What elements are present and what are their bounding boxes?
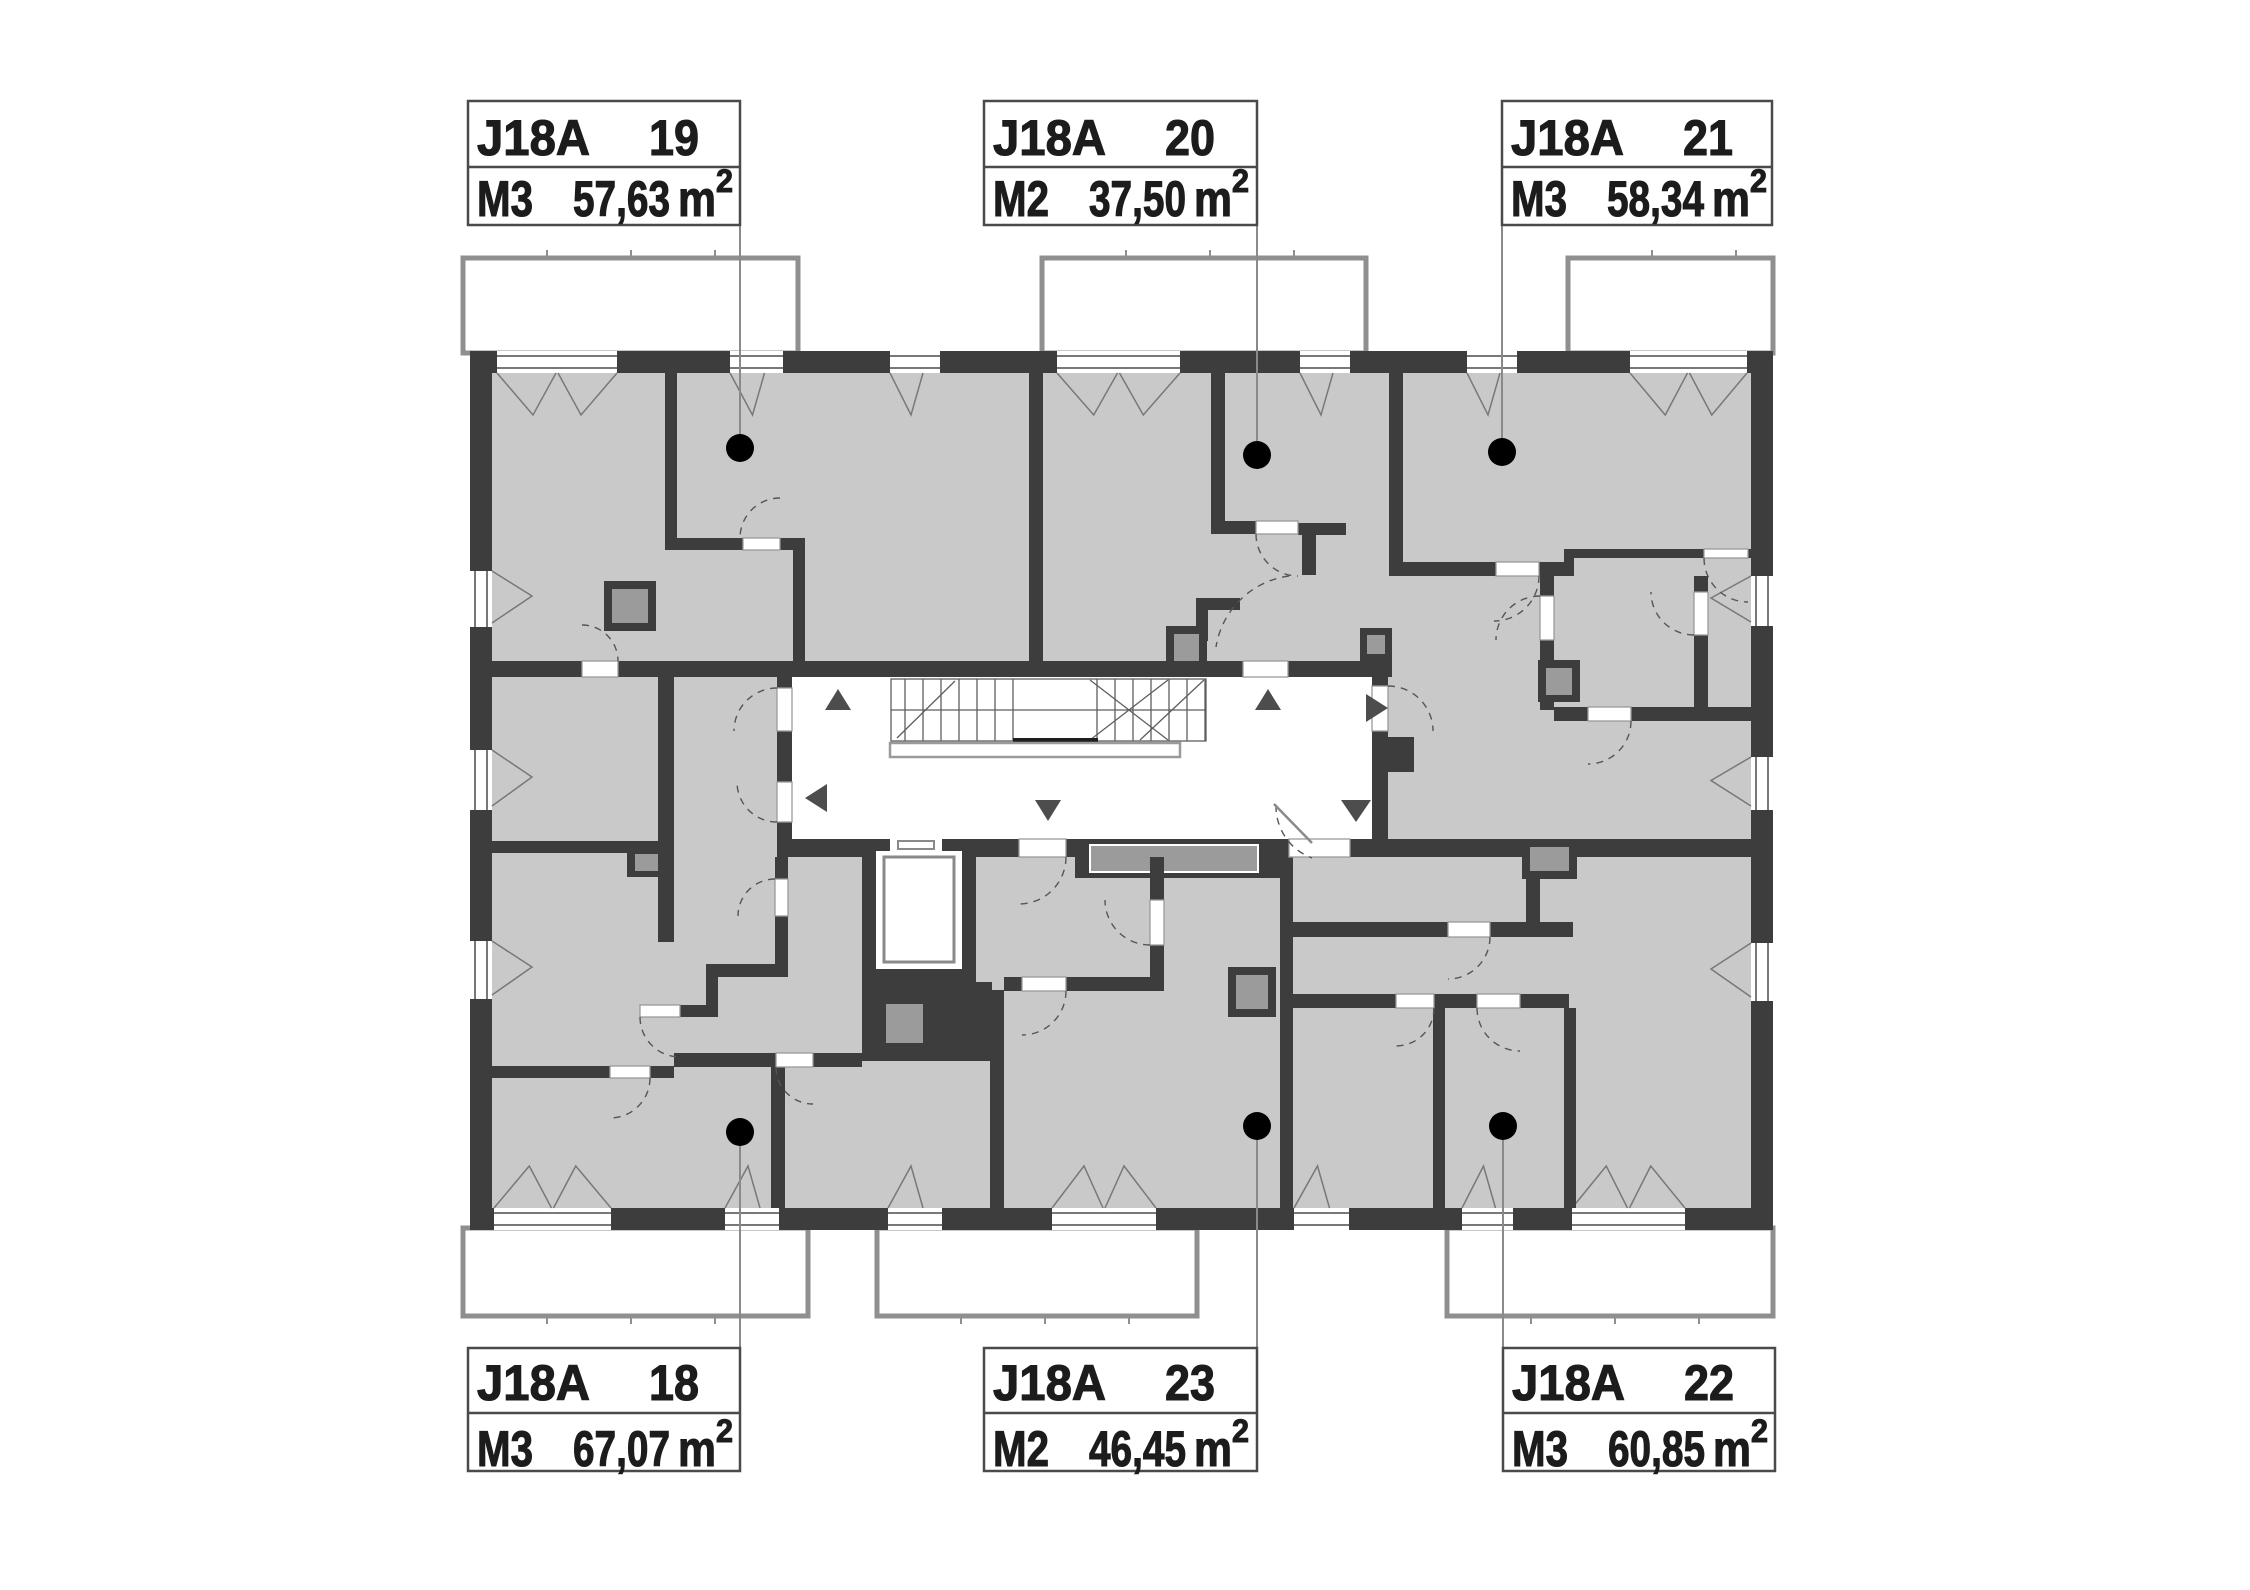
svg-text:J18A: J18A [993, 110, 1106, 166]
svg-text:2: 2 [716, 1413, 733, 1449]
svg-text:J18A: J18A [477, 110, 590, 166]
svg-text:J18A: J18A [1512, 1355, 1625, 1411]
svg-text:2: 2 [1751, 1413, 1768, 1449]
svg-text:2: 2 [1232, 163, 1249, 199]
svg-text:M2: M2 [993, 171, 1049, 227]
svg-text:J18A: J18A [993, 1355, 1106, 1411]
svg-text:m: m [678, 171, 716, 227]
svg-text:37,50: 37,50 [1089, 171, 1186, 227]
svg-text:m: m [1713, 1421, 1751, 1477]
svg-text:m: m [678, 1421, 716, 1477]
svg-text:J18A: J18A [477, 1355, 590, 1411]
svg-text:22: 22 [1684, 1355, 1734, 1411]
svg-text:67,07: 67,07 [573, 1421, 670, 1477]
svg-text:21: 21 [1683, 110, 1733, 166]
svg-text:23: 23 [1165, 1355, 1215, 1411]
svg-text:20: 20 [1165, 110, 1215, 166]
svg-text:58,34: 58,34 [1607, 171, 1704, 227]
svg-text:m: m [1194, 171, 1232, 227]
svg-text:60,85: 60,85 [1608, 1421, 1705, 1477]
svg-text:2: 2 [1750, 163, 1767, 199]
svg-text:46,45: 46,45 [1089, 1421, 1186, 1477]
svg-text:J18A: J18A [1511, 110, 1624, 166]
svg-text:M3: M3 [477, 1421, 533, 1477]
svg-text:m: m [1712, 171, 1750, 227]
svg-text:M3: M3 [1511, 171, 1567, 227]
svg-text:57,63: 57,63 [573, 171, 670, 227]
svg-text:M3: M3 [1512, 1421, 1568, 1477]
svg-text:M2: M2 [993, 1421, 1049, 1477]
svg-text:M3: M3 [477, 171, 533, 227]
svg-text:19: 19 [649, 110, 699, 166]
svg-text:2: 2 [1232, 1413, 1249, 1449]
svg-text:18: 18 [649, 1355, 699, 1411]
svg-text:2: 2 [716, 163, 733, 199]
svg-text:m: m [1194, 1421, 1232, 1477]
